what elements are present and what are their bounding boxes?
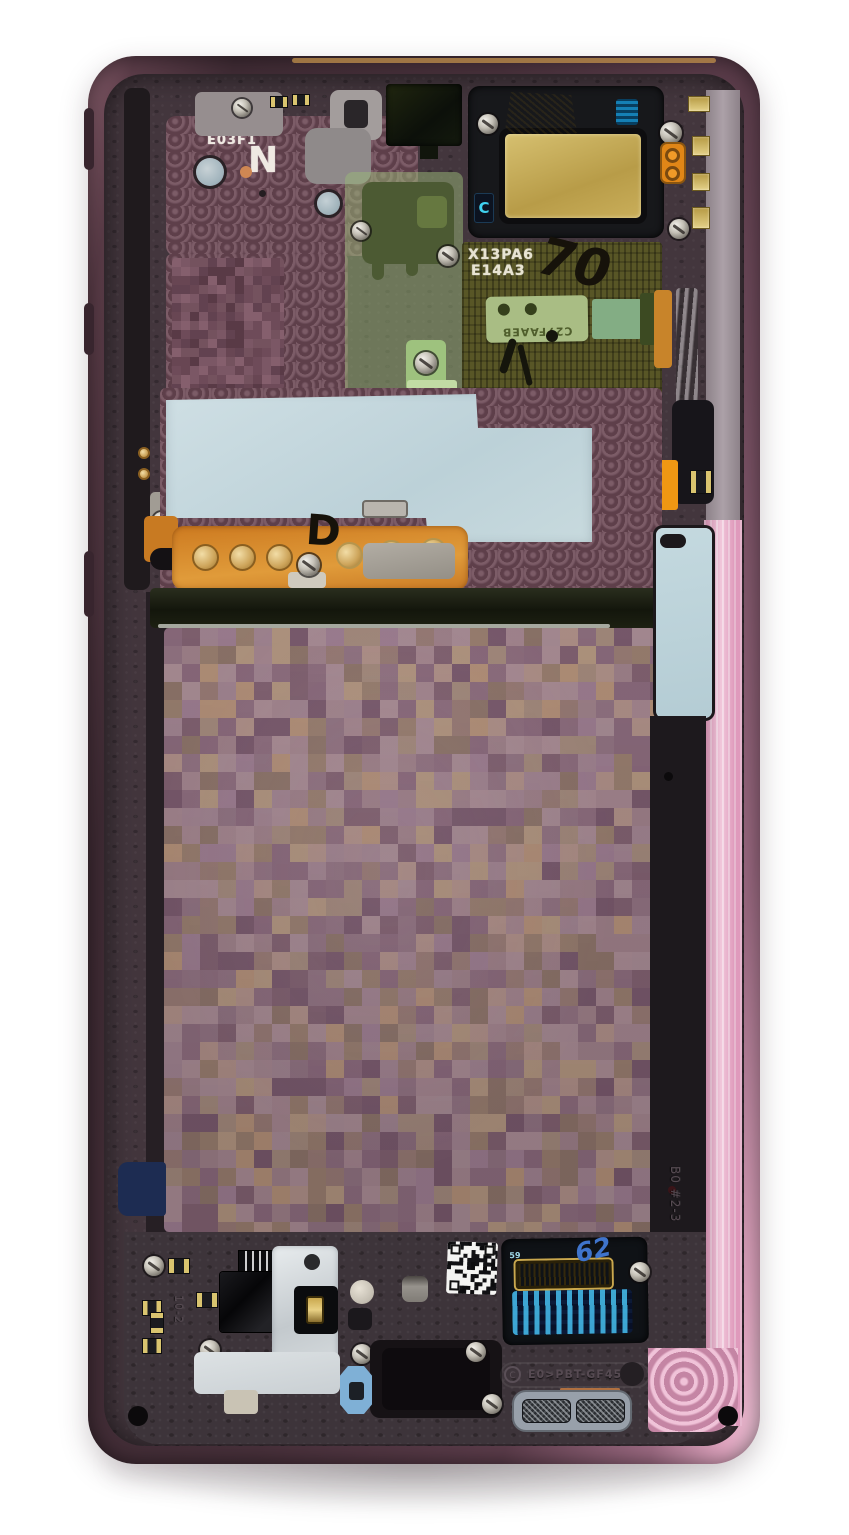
mosaic-cell [614,1024,633,1043]
mosaic-cell [380,1204,399,1223]
mosaic-cell [542,952,561,971]
mosaic-cell [236,1078,255,1097]
mosaic-cell [542,862,561,881]
mosaic-cell [290,1204,309,1223]
mosaic-cell [218,1024,237,1043]
mosaic-cell [560,772,579,791]
mosaic-cell [632,1114,651,1133]
mosaic-cell [488,754,507,773]
mosaic-cell [488,1168,507,1187]
mosaic-cell [578,1132,597,1151]
mosaic-cell [380,934,399,953]
mosaic-cell [452,772,471,791]
mosaic-cell [452,1204,471,1223]
mosaic-cell [398,1114,417,1133]
mosaic-cell [254,1222,273,1232]
mosaic-cell [488,1078,507,1097]
mosaic-cell [254,934,273,953]
qr-finder-3 [449,1280,459,1290]
mosaic-cell [524,664,543,683]
mosaic-cell [434,646,453,665]
mosaic-cell [542,880,561,899]
mosaic-cell [362,1042,381,1061]
mosaic-cell [578,1204,597,1223]
mosaic-cell [272,790,291,809]
mosaic-cell [596,754,615,773]
mosaic-cell [506,1078,525,1097]
mosaic-cell [488,1042,507,1061]
mosaic-cell [254,844,273,863]
mosaic-cell [542,988,561,1007]
mosaic-cell [218,1186,237,1205]
handwritten-d: D [304,505,342,556]
mosaic-cell [578,772,597,791]
mosaic-cell [236,1186,255,1205]
mosaic-cell [632,754,651,773]
mosaic-cell [326,916,345,935]
mosaic-cell [452,754,471,773]
mosaic-cell [542,808,561,827]
mosaic-cell [488,628,507,647]
mosaic-cell [362,934,381,953]
mosaic-cell [560,1204,579,1223]
mosaic-cell [488,1060,507,1079]
mosaic-cell [218,862,237,881]
mosaic-cell [164,844,183,863]
mosaic-cell [200,682,219,701]
mosaic-cell [290,772,309,791]
mosaic-cell [470,844,489,863]
mosaic-cell [380,754,399,773]
connector-pin-count: 59 [509,1251,520,1260]
mosaic-cell [398,898,417,917]
plate-hole [304,1254,320,1270]
mosaic-cell [506,1114,525,1133]
mosaic-cell [398,682,417,701]
mosaic-cell [380,988,399,1007]
mosaic-cell [236,1006,255,1025]
mosaic-cell [632,1042,651,1061]
mosaic-cell [182,844,201,863]
mosaic-cell [542,1096,561,1115]
bottom-smd-5 [150,1312,164,1334]
mosaic-cell [506,1024,525,1043]
mosaic-cell [524,628,543,647]
mosaic-cell [614,844,633,863]
mosaic-cell [290,628,309,647]
mosaic-cell [290,970,309,989]
mosaic-cell [236,664,255,683]
mosaic-cell [308,1042,327,1061]
mosaic-cell [272,844,291,863]
mosaic-cell [614,1132,633,1151]
mosaic-cell [488,844,507,863]
mosaic-cell [344,700,363,719]
mosaic-cell [614,628,633,647]
mosaic-cell [524,1204,543,1223]
mosaic-cell [254,970,273,989]
mosaic-cell [272,754,291,773]
mosaic-cell [218,646,237,665]
mosaic-cell [488,700,507,719]
mosaic-cell [542,1222,561,1232]
mosaic-cell [434,1078,453,1097]
side-button-middle [84,303,94,355]
mosaic-cell [218,808,237,827]
mosaic-cell [452,844,471,863]
mosaic-cell [434,1168,453,1187]
mosaic-cell [506,934,525,953]
mosaic-cell [398,970,417,989]
mosaic-cell [506,754,525,773]
mosaic-cell [362,1132,381,1151]
mosaic-cell [560,628,579,647]
mosaic-cell [560,1006,579,1025]
mosaic-cell [506,988,525,1007]
mosaic-cell [254,1078,273,1097]
mosaic-cell [200,718,219,737]
mosaic-cell [164,1024,183,1043]
mosaic-cell [308,1006,327,1025]
mosaic-cell [452,682,471,701]
bottom-screw-6 [482,1394,502,1414]
mosaic-cell [452,1006,471,1025]
mosaic-cell [272,646,291,665]
mosaic-cell [308,898,327,917]
mosaic-cell [542,772,561,791]
mosaic-cell [524,718,543,737]
mosaic-cell [488,1114,507,1133]
mosaic-cell [614,1204,633,1223]
mosaic-cell [218,1078,237,1097]
mosaic-cell [254,664,273,683]
mosaic-cell [398,952,417,971]
film-screw-2 [438,246,458,266]
dark-recess [348,1308,372,1330]
mosaic-cell [236,718,255,737]
mosaic-cell [182,646,201,665]
mosaic-cell [596,808,615,827]
emboss-frame-code: B0 #2-3 [668,1166,682,1222]
mosaic-cell [182,1132,201,1151]
mosaic-cell [362,826,381,845]
mosaic-cell [596,916,615,935]
side-button-top [84,108,94,170]
mosaic-cell [614,1186,633,1205]
mosaic-cell [308,1204,327,1223]
mosaic-cell [272,898,291,917]
mosaic-cell [236,1132,255,1151]
mosaic-cell [362,1096,381,1115]
mosaic-cell [578,1060,597,1079]
mosaic-cell [506,898,525,917]
mosaic-cell [290,1186,309,1205]
mosaic-cell [614,664,633,683]
mosaic-cell [506,1042,525,1061]
mosaic-cell [506,970,525,989]
right-thermal-pad [656,528,712,718]
mosaic-cell [182,970,201,989]
mosaic-cell [524,682,543,701]
mosaic-cell [326,1024,345,1043]
mosaic-cell [578,898,597,917]
mosaic-cell [380,1096,399,1115]
qr-finder-1 [450,1244,460,1254]
mosaic-cell [542,826,561,845]
mosaic-cell [344,970,363,989]
mosaic-cell [524,1042,543,1061]
mosaic-cell [344,736,363,755]
mosaic-cell [614,1150,633,1169]
mosaic-cell [416,898,435,917]
mosaic-cell [578,1042,597,1061]
mosaic-cell [560,1132,579,1151]
mosaic-cell [182,826,201,845]
mosaic-cell [362,988,381,1007]
mosaic-cell [488,736,507,755]
mosaic-cell [326,736,345,755]
mosaic-cell [632,1186,651,1205]
mosaic-cell [308,1060,327,1079]
mosaic-cell [290,988,309,1007]
mosaic-cell [506,1168,525,1187]
mosaic-cell [344,754,363,773]
mosaic-cell [434,1186,453,1205]
mosaic-cell [344,1024,363,1043]
mosaic-cell [524,916,543,935]
mosaic-cell [236,880,255,899]
mosaic-cell [578,952,597,971]
mosaic-cell [596,1168,615,1187]
mosaic-cell [344,1060,363,1079]
mosaic-cell [254,1006,273,1025]
module-code-line2: E14A3 [471,263,526,279]
mosaic-cell [344,1204,363,1223]
mosaic-cell [200,1042,219,1061]
mosaic-cell [560,1042,579,1061]
mosaic-cell [326,1132,345,1151]
mosaic-cell [362,952,381,971]
mosaic-cell [272,1024,291,1043]
mosaic-cell [578,664,597,683]
mosaic-cell [614,790,633,809]
mosaic-cell [200,1114,219,1133]
mosaic-cell [632,862,651,881]
mosaic-cell [218,1096,237,1115]
mosaic-cell [164,952,183,971]
mosaic-cell [380,880,399,899]
mosaic-cell [434,1132,453,1151]
mosaic-cell [488,1024,507,1043]
mosaic-cell [488,682,507,701]
sticker-code-text: C27FAAEB [486,324,588,339]
mosaic-cell [344,988,363,1007]
qr-finder-2 [484,1245,494,1255]
mosaic-cell [272,1168,291,1187]
mosaic-cell [506,1222,525,1232]
mosaic-cell [560,736,579,755]
mosaic-cell [308,646,327,665]
mosaic-cell [542,700,561,719]
mosaic-cell [164,1204,183,1223]
mosaic-cell [398,916,417,935]
mosaic-cell [434,1150,453,1169]
mosaic-cell [218,1132,237,1151]
mosaic-cell [362,1150,381,1169]
orange-side-strip [654,290,672,368]
mosaic-cell [452,646,471,665]
mosaic-cell [470,790,489,809]
flex-connector-small [362,500,408,518]
mosaic-cell [380,628,399,647]
mosaic-cell [362,916,381,935]
mosaic-cell [182,1078,201,1097]
mosaic-cell [542,1078,561,1097]
grille-mesh-left [522,1399,571,1423]
mosaic-cell [272,1078,291,1097]
mosaic-cell [470,916,489,935]
mosaic-cell [308,1150,327,1169]
mosaic-cell [416,1186,435,1205]
mosaic-cell [218,772,237,791]
mosaic-cell [380,1078,399,1097]
mosaic-cell [434,934,453,953]
mosaic-cell [398,1006,417,1025]
mosaic-cell [632,772,651,791]
mosaic-cell [488,646,507,665]
mosaic-cell [524,952,543,971]
mosaic-cell [596,970,615,989]
battery-mosaic [164,628,656,1232]
mosaic-cell [614,952,633,971]
mosaic-cell [380,1060,399,1079]
mosaic-cell [488,1132,507,1151]
mosaic-cell [200,988,219,1007]
mosaic-cell [182,1042,201,1061]
mosaic-cell [236,700,255,719]
mosaic-cell [236,1222,255,1232]
mosaic-cell [326,1204,345,1223]
mosaic-cell [326,646,345,665]
mosaic-cell [218,916,237,935]
mosaic-cell [362,898,381,917]
mosaic-cell [344,664,363,683]
mosaic-cell [416,664,435,683]
mosaic-cell [344,916,363,935]
mosaic-cell [344,898,363,917]
mosaic-cell [434,898,453,917]
mosaic-cell [290,700,309,719]
mosaic-cell [560,844,579,863]
mosaic-cell [614,646,633,665]
mosaic-cell [272,862,291,881]
mosaic-cell [326,1114,345,1133]
mosaic-cell [452,1060,471,1079]
mosaic-cell [236,988,255,1007]
left-inner-rail [124,88,150,590]
mosaic-cell [326,1060,345,1079]
mosaic-cell [488,808,507,827]
mosaic-cell [398,646,417,665]
mosaic-cell [200,772,219,791]
mosaic-cell [416,772,435,791]
mosaic-cell [470,934,489,953]
mosaic-cell [452,898,471,917]
mosaic-cell [470,988,489,1007]
mosaic-cell [488,1222,507,1232]
mosaic-cell [308,754,327,773]
mosaic-cell [542,844,561,863]
mosaic-cell [290,1150,309,1169]
mosaic-cell [416,1024,435,1043]
battery-top-bar [150,588,662,628]
mosaic-cell [506,952,525,971]
mosaic-cell [416,628,435,647]
mosaic-cell [236,970,255,989]
mosaic-cell [434,790,453,809]
mosaic-cell [398,1042,417,1061]
mosaic-cell [272,988,291,1007]
bottom-screw-5 [466,1342,486,1362]
mosaic-cell [398,844,417,863]
mosaic-cell [218,790,237,809]
mosaic-cell [452,934,471,953]
mosaic-cell [290,1168,309,1187]
mosaic-cell [236,646,255,665]
c-sticker: C [474,193,494,223]
mosaic-cell [344,646,363,665]
mosaic-cell [308,736,327,755]
smd-pad-top-2 [292,94,310,106]
mosaic-cell [164,862,183,881]
mosaic-cell [218,988,237,1007]
module-code-line1: X13PA6 [468,247,534,263]
mosaic-cell [416,1150,435,1169]
mosaic-cell [398,1222,417,1232]
mosaic-cell [380,952,399,971]
mosaic-cell [344,718,363,737]
sticker-hole-1 [498,303,510,315]
mosaic-cell [164,1078,183,1097]
mosaic-cell [524,862,543,881]
mosaic-cell [182,880,201,899]
mosaic-cell [182,736,201,755]
mosaic-cell [542,916,561,935]
mosaic-cell [596,934,615,953]
mosaic-cell [344,808,363,827]
mosaic-cell [578,844,597,863]
mosaic-cell [542,682,561,701]
mosaic-cell [308,1024,327,1043]
mosaic-cell [578,754,597,773]
mosaic-cell [416,718,435,737]
small-black-chip [690,470,712,494]
side-button-bottom [84,551,94,617]
mosaic-cell [578,682,597,701]
mosaic-cell [542,898,561,917]
mosaic-cell [200,646,219,665]
mosaic-cell [308,970,327,989]
mosaic-cell [506,862,525,881]
mosaic-cell [290,736,309,755]
mosaic-cell [542,1132,561,1151]
mosaic-cell [236,934,255,953]
mosaic-cell [542,934,561,953]
mosaic-cell [290,1132,309,1151]
mosaic-cell [200,970,219,989]
mosaic-cell [290,1078,309,1097]
mosaic-cell [398,880,417,899]
